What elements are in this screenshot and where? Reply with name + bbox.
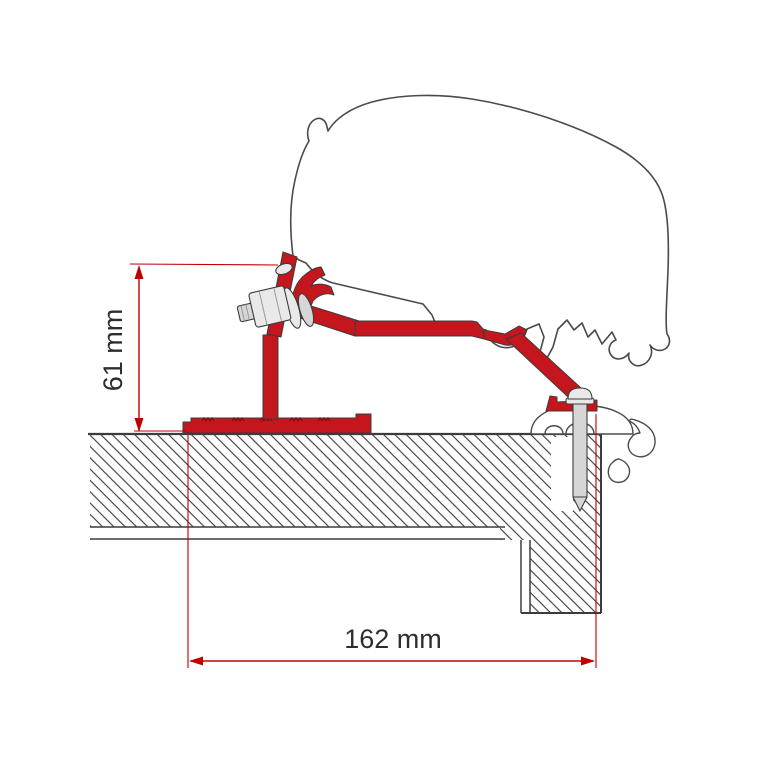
screw-head — [568, 388, 592, 399]
awning-adapter-diagram: 61 mm 162 mm — [0, 0, 766, 766]
bracket-leg — [263, 335, 278, 419]
wall-hatch — [530, 540, 601, 613]
dim-61-reference-line — [130, 264, 278, 265]
trim-right-hook — [628, 419, 655, 457]
rail-horizontal-bar — [355, 321, 484, 339]
hex-nut — [248, 285, 291, 327]
roof-hatch — [90, 435, 601, 527]
trim-lower-curl — [608, 459, 629, 482]
hex-bolt-with-washers — [235, 261, 317, 330]
screw-shaft — [573, 403, 587, 497]
dim-162-arrow-right — [581, 657, 595, 666]
dim-61-label: 61 mm — [98, 309, 128, 392]
roof-edge-hatch — [500, 527, 601, 540]
dim-162-label: 162 mm — [344, 624, 442, 654]
dim-61-arrow-up — [135, 265, 144, 279]
roof-cross-section — [88, 434, 601, 540]
dim-61-arrow-down — [135, 418, 144, 432]
dim-162-arrow-left — [189, 657, 203, 666]
diagram-canvas: 61 mm 162 mm — [0, 0, 766, 766]
screw-channel — [551, 437, 573, 511]
dimension-61mm: 61 mm — [98, 264, 278, 432]
